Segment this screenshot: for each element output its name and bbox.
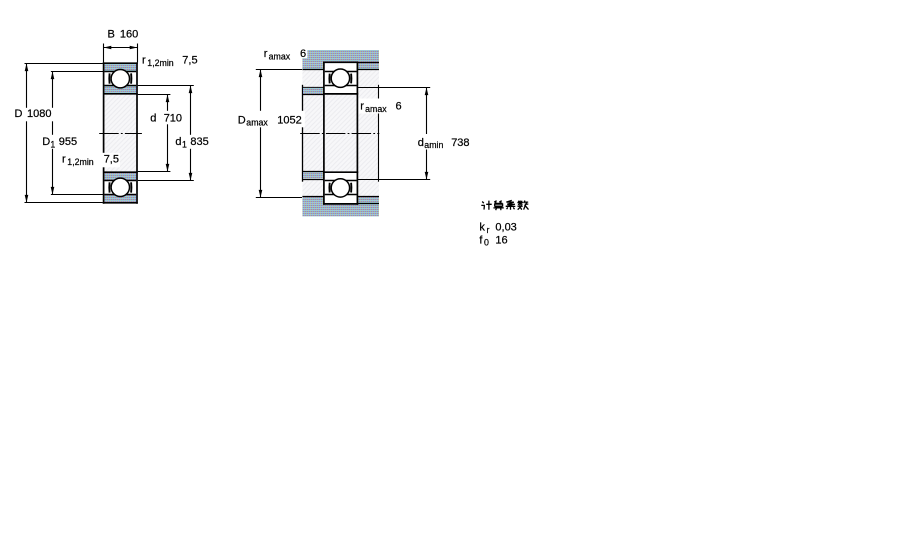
svg-text:D: D bbox=[42, 136, 50, 148]
svg-text:amax: amax bbox=[246, 118, 268, 128]
svg-text:amin: amin bbox=[424, 140, 443, 150]
svg-text:D: D bbox=[15, 108, 23, 120]
svg-text:738: 738 bbox=[451, 137, 469, 149]
svg-text:r: r bbox=[487, 225, 490, 235]
svg-text:r: r bbox=[142, 54, 146, 66]
svg-text:d: d bbox=[175, 136, 181, 148]
svg-text:amax: amax bbox=[365, 104, 387, 114]
svg-text:1,2min: 1,2min bbox=[67, 157, 94, 167]
svg-text:B: B bbox=[108, 29, 115, 41]
svg-text:k: k bbox=[479, 222, 485, 234]
svg-text:d: d bbox=[150, 113, 156, 125]
svg-text:1052: 1052 bbox=[277, 114, 301, 126]
svg-text:1: 1 bbox=[182, 140, 187, 150]
svg-text:r: r bbox=[360, 101, 364, 113]
svg-text:6: 6 bbox=[300, 48, 306, 60]
svg-text:amax: amax bbox=[269, 51, 291, 61]
svg-text:r: r bbox=[264, 48, 268, 60]
svg-text:1080: 1080 bbox=[27, 108, 51, 120]
svg-text:6: 6 bbox=[396, 100, 402, 112]
svg-text:16: 16 bbox=[495, 234, 507, 246]
svg-text:160: 160 bbox=[120, 29, 138, 41]
svg-text:835: 835 bbox=[190, 136, 208, 148]
svg-text:0,03: 0,03 bbox=[495, 222, 516, 234]
svg-text:d: d bbox=[418, 137, 424, 149]
svg-text:D: D bbox=[238, 114, 246, 126]
svg-text:1: 1 bbox=[50, 140, 55, 150]
svg-text:1,2min: 1,2min bbox=[147, 58, 174, 68]
svg-text:710: 710 bbox=[164, 113, 182, 125]
svg-text:r: r bbox=[62, 154, 66, 166]
svg-text:0: 0 bbox=[484, 238, 489, 248]
svg-text:955: 955 bbox=[59, 136, 77, 148]
svg-text:7,5: 7,5 bbox=[182, 54, 197, 66]
svg-text:7,5: 7,5 bbox=[104, 154, 119, 166]
